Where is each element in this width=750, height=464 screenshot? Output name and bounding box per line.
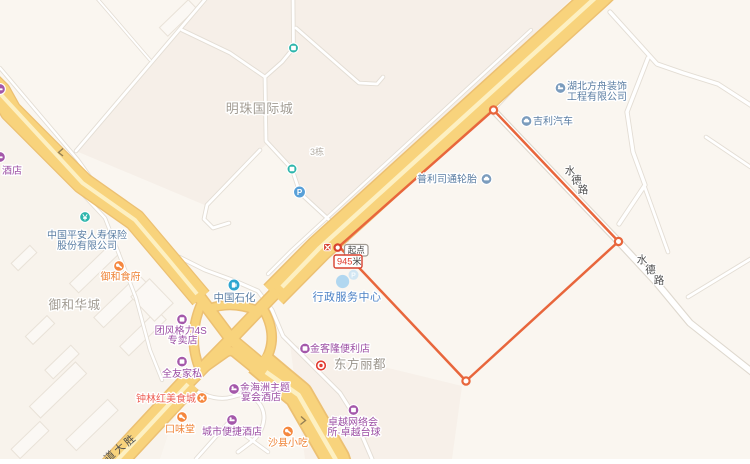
svg-text:宴会酒店: 宴会酒店	[241, 391, 281, 404]
svg-text:945米: 945米	[337, 256, 362, 267]
svg-text:御和华城: 御和华城	[48, 297, 100, 312]
svg-text:起点: 起点	[348, 245, 366, 255]
svg-text:御和食府: 御和食府	[101, 270, 141, 283]
svg-text:吉利汽车: 吉利汽车	[533, 115, 573, 128]
svg-text:P: P	[351, 273, 356, 280]
svg-text:工程有限公司: 工程有限公司	[567, 90, 627, 103]
svg-text:沙县小吃: 沙县小吃	[268, 436, 308, 449]
svg-text:3栋: 3栋	[310, 146, 324, 157]
svg-text:城市便捷酒店: 城市便捷酒店	[202, 425, 262, 438]
svg-text:￥: ￥	[81, 213, 89, 222]
svg-text:东方丽都: 东方丽都	[334, 357, 386, 372]
svg-text:普利司通轮胎: 普利司通轮胎	[417, 173, 477, 186]
svg-text:P: P	[297, 188, 303, 197]
svg-text:酒店: 酒店	[2, 164, 22, 177]
svg-text:路: 路	[654, 274, 665, 287]
svg-text:湖北方舟装饰: 湖北方舟装饰	[567, 80, 627, 93]
svg-text:专卖店: 专卖店	[168, 334, 198, 347]
svg-text:股份有限公司: 股份有限公司	[57, 239, 117, 252]
svg-text:钟林红美食城: 钟林红美食城	[136, 392, 196, 405]
svg-text:中国平安人寿保险: 中国平安人寿保险	[47, 229, 127, 242]
svg-text:口味堂: 口味堂	[165, 424, 195, 436]
svg-text:金客隆便利店: 金客隆便利店	[310, 342, 370, 355]
svg-text:明珠国际城: 明珠国际城	[226, 101, 294, 116]
svg-text:全友家私: 全友家私	[162, 367, 202, 380]
svg-text:行政服务中心: 行政服务中心	[313, 290, 382, 304]
svg-text:中国石化: 中国石化	[214, 291, 256, 304]
svg-text:路: 路	[578, 183, 589, 196]
svg-text:所·卓越台球: 所·卓越台球	[327, 426, 380, 439]
